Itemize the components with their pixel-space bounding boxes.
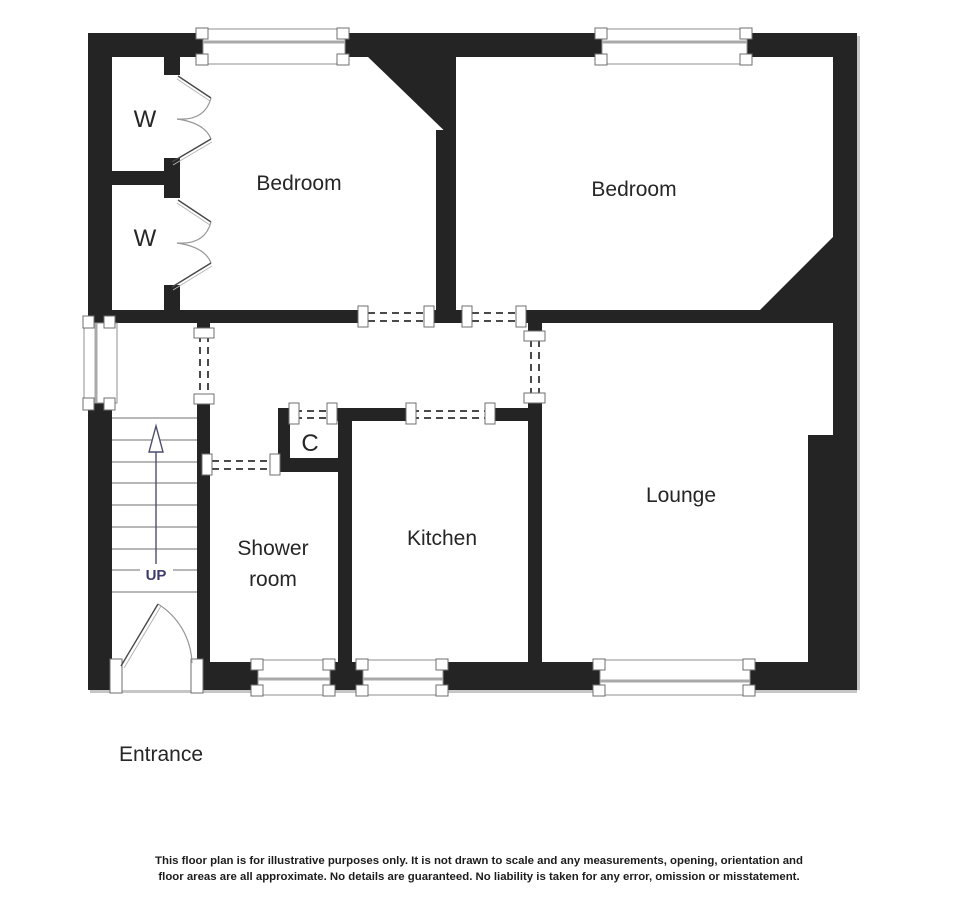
closet-divider-wall bbox=[100, 171, 170, 185]
kitchen-left-wall bbox=[338, 408, 352, 665]
window-left bbox=[83, 316, 117, 410]
window-top-left bbox=[196, 28, 349, 65]
lounge-left-wall bbox=[528, 400, 542, 665]
entrance-label: Entrance bbox=[119, 743, 203, 766]
opening-stairs-hall bbox=[194, 328, 214, 404]
wardrobe-bottom-bifold-door bbox=[172, 200, 212, 290]
bedroom-left-label: Bedroom bbox=[256, 172, 341, 195]
wall-left-lower bbox=[88, 403, 112, 690]
floorplan-svg: UP W W bbox=[0, 0, 960, 900]
entrance-door bbox=[110, 604, 203, 693]
bedroom-right-label: Bedroom bbox=[591, 178, 676, 201]
wall-between-bedrooms bbox=[436, 130, 456, 323]
kitchen-top-wall-right bbox=[495, 408, 542, 421]
stairs: UP bbox=[112, 418, 197, 592]
opening-kitchen-door bbox=[406, 403, 495, 424]
floorplan-page: UP W W bbox=[0, 0, 960, 900]
stairs-up-label: UP bbox=[146, 567, 167, 584]
wall-chamfer-bedroom-right bbox=[760, 237, 833, 310]
wall-top-seg2 bbox=[345, 33, 602, 57]
opening-bedroom-left-door bbox=[358, 306, 434, 327]
window-bottom-kitchen bbox=[356, 659, 448, 696]
opening-lounge-door bbox=[524, 331, 545, 403]
wall-right bbox=[833, 33, 857, 690]
wall-right-recess bbox=[808, 435, 833, 690]
lounge-top-wall bbox=[524, 310, 833, 323]
opening-cupboard-door bbox=[289, 403, 337, 424]
cupboard-bottom-wall bbox=[278, 458, 352, 472]
wall-top-seg1 bbox=[88, 33, 203, 57]
wall-bottom-seg4 bbox=[443, 662, 600, 690]
doors bbox=[110, 76, 212, 693]
lounge-label: Lounge bbox=[646, 484, 716, 507]
disclaimer: This floor plan is for illustrative purp… bbox=[155, 855, 803, 883]
wardrobe-bottom-label: W bbox=[134, 225, 157, 252]
opening-bedroom-right-door bbox=[462, 306, 526, 327]
wall-bottom-seg5 bbox=[750, 662, 857, 690]
kitchen-label: Kitchen bbox=[407, 527, 477, 550]
disclaimer-line1: This floor plan is for illustrative purp… bbox=[155, 855, 803, 867]
window-bottom-shower bbox=[251, 659, 335, 696]
wardrobe-top-bifold-door bbox=[172, 76, 212, 165]
disclaimer-line2: floor areas are all approximate. No deta… bbox=[158, 871, 799, 883]
window-top-right bbox=[595, 28, 752, 65]
hatch-right bbox=[857, 36, 860, 690]
openings bbox=[194, 306, 545, 475]
cupboard-label: C bbox=[301, 430, 318, 457]
closet-stub-top bbox=[164, 53, 180, 75]
windows bbox=[83, 28, 755, 696]
opening-shower-door bbox=[202, 454, 280, 475]
walls bbox=[88, 33, 860, 693]
wall-chamfer-bedroom-left bbox=[368, 57, 456, 142]
shower-room-label-line1: Shower bbox=[237, 537, 308, 560]
stairs-wall bbox=[197, 395, 210, 662]
hall-top-wall-left bbox=[100, 310, 360, 323]
window-bottom-lounge bbox=[593, 659, 755, 696]
stairs-arrow-head bbox=[149, 426, 163, 452]
shower-room-label-line2: room bbox=[249, 568, 297, 591]
wardrobe-top-label: W bbox=[134, 106, 157, 133]
